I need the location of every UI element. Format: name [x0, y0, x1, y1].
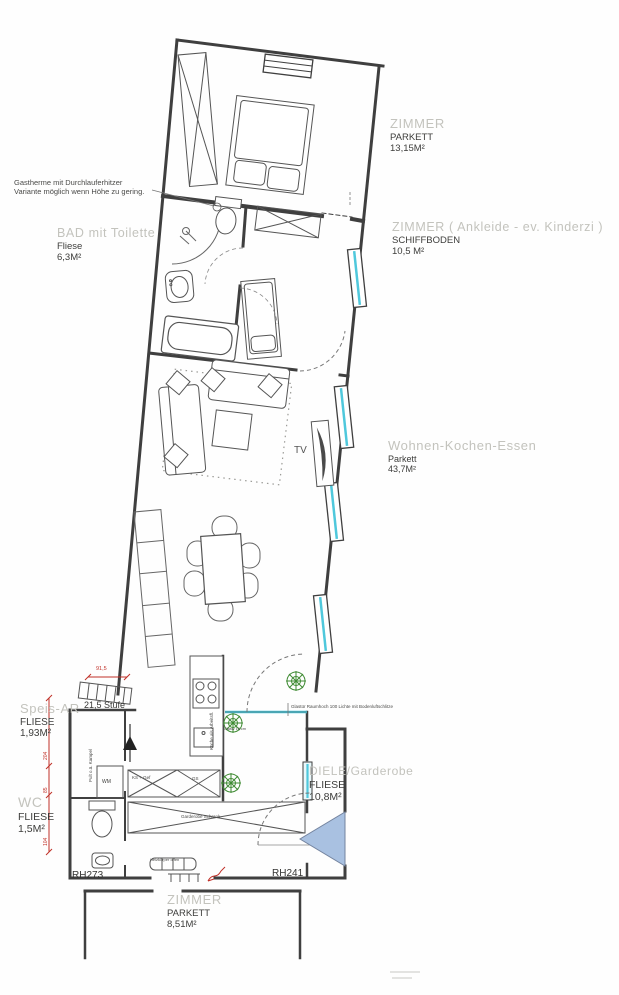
- room-floor: Parkett: [388, 454, 536, 464]
- toilet-wc: [89, 801, 115, 837]
- tv-label: TV: [294, 445, 307, 456]
- window-right-2: [334, 385, 353, 448]
- window-right-1: [348, 248, 367, 307]
- room-label-wohnen: Wohnen-Kochen-Essen Parkett 43,7M²: [388, 438, 536, 474]
- stairs-label: 21,5 Stufe: [84, 700, 125, 710]
- wm-label: WM: [102, 779, 111, 785]
- washbasin: [165, 270, 195, 303]
- room-floor: SCHIFFBODEN: [392, 235, 603, 246]
- room-area: 10,8M²: [309, 791, 413, 803]
- entry-arrow: [300, 812, 345, 866]
- kitchen-strip: [190, 656, 223, 756]
- pult-vertical-label: Pult o.ä. Kampel: [88, 749, 93, 782]
- toilet-bath: [211, 197, 241, 236]
- glas10-label: Glasw 10 cm: [224, 727, 246, 731]
- door-arc-bath-1: [205, 248, 243, 284]
- single-bed: [241, 279, 282, 360]
- gs-label: GS: [192, 776, 199, 781]
- tv: [311, 420, 334, 486]
- room-floor: PARKETT: [167, 908, 222, 919]
- plant-icon: [221, 773, 241, 793]
- room-label-ankleide: ZIMMER ( Ankleide - ev. Kinderzi ) SCHIF…: [392, 220, 603, 257]
- room-floor: FLIESE: [18, 811, 54, 823]
- note-gastherme: Gastherme mit Durchlauferhitzer Variante…: [14, 178, 144, 196]
- room-area: 43,7M²: [388, 464, 536, 474]
- scan-marks: [390, 972, 420, 978]
- room-floor: PARKETT: [390, 132, 445, 143]
- room-area: 13,15M²: [390, 143, 445, 154]
- dim-91-5: 91,5: [96, 666, 107, 672]
- room-label-bad: BAD mit Toilette Fliese 6,3M²: [57, 226, 155, 263]
- room-area: 1,5M²: [18, 823, 54, 835]
- room-area: 10,5 M²: [392, 246, 603, 257]
- dim-204: 204: [43, 752, 49, 760]
- room-area: 8,51M²: [167, 919, 222, 930]
- room-label-wc: WC FLIESE 1,5M²: [18, 794, 54, 835]
- plant-icon: [286, 671, 306, 691]
- wardrobe-bedroom: [178, 53, 217, 187]
- room-area: 6,3M²: [57, 252, 155, 263]
- room-label-zimmer-top: ZIMMER PARKETT 13,15M²: [390, 116, 445, 154]
- note-gastherme-line1: Gastherme mit Durchlauferhitzer: [14, 178, 144, 187]
- room-label-speis: Speis-AR FLIESE 1,93M²: [20, 701, 80, 739]
- garderobe-schrank-label: Garderobe Schrank: [181, 814, 220, 819]
- window-right-3: [325, 482, 344, 541]
- room-name: Wohnen-Kochen-Essen: [388, 438, 536, 453]
- room-name: BAD mit Toilette: [57, 226, 155, 240]
- rh-right-label: RH241: [272, 868, 303, 879]
- kitchen-counter-left: [134, 510, 175, 668]
- room-name: ZIMMER: [167, 892, 222, 907]
- note-gastherme-line2: Variante möglich wenn Höhe zu gering.: [14, 187, 144, 196]
- room-floor: Fliese: [57, 241, 155, 252]
- coffee-table: [212, 410, 252, 450]
- kueche-vertical-label: Küche als Arbeitsfl.: [209, 712, 214, 750]
- rh-left-label: RH273: [72, 870, 103, 881]
- door-arc-ankleide: [300, 331, 345, 371]
- note-heizkoerper: Heizkörper offen: [150, 857, 179, 862]
- floorplan-svg: [0, 0, 619, 995]
- dining-table: [201, 534, 246, 605]
- room-name: ZIMMER ( Ankleide - ev. Kinderzi ): [392, 220, 603, 234]
- room-label-diele: DIELE/Garderobe FLIESE 10,8M²: [309, 764, 413, 803]
- window-right-4: [314, 594, 333, 653]
- wc-sink: [92, 853, 113, 868]
- double-bed: [226, 96, 314, 195]
- room-label-zimmer-bottom: ZIMMER PARKETT 8,51M²: [167, 892, 222, 930]
- room-area: 1,93M²: [20, 728, 80, 739]
- room-name: DIELE/Garderobe: [309, 764, 413, 778]
- note-glastuer: Glastür Raumhoch 100 Lichte mit Bodenluf…: [291, 704, 393, 709]
- floorplan-canvas: Gastherme mit Durchlauferhitzer Variante…: [0, 0, 619, 995]
- room-floor: FLIESE: [20, 717, 80, 728]
- room-name: ZIMMER: [390, 116, 445, 131]
- shower: [172, 215, 221, 264]
- room-name: Speis-AR: [20, 701, 80, 716]
- dim-85: 85: [43, 787, 49, 793]
- ks-gef-label: KS + Gef: [132, 775, 150, 780]
- room-name: WC: [18, 794, 54, 810]
- room-floor: FLIESE: [309, 779, 413, 791]
- dim-104: 104: [43, 838, 49, 846]
